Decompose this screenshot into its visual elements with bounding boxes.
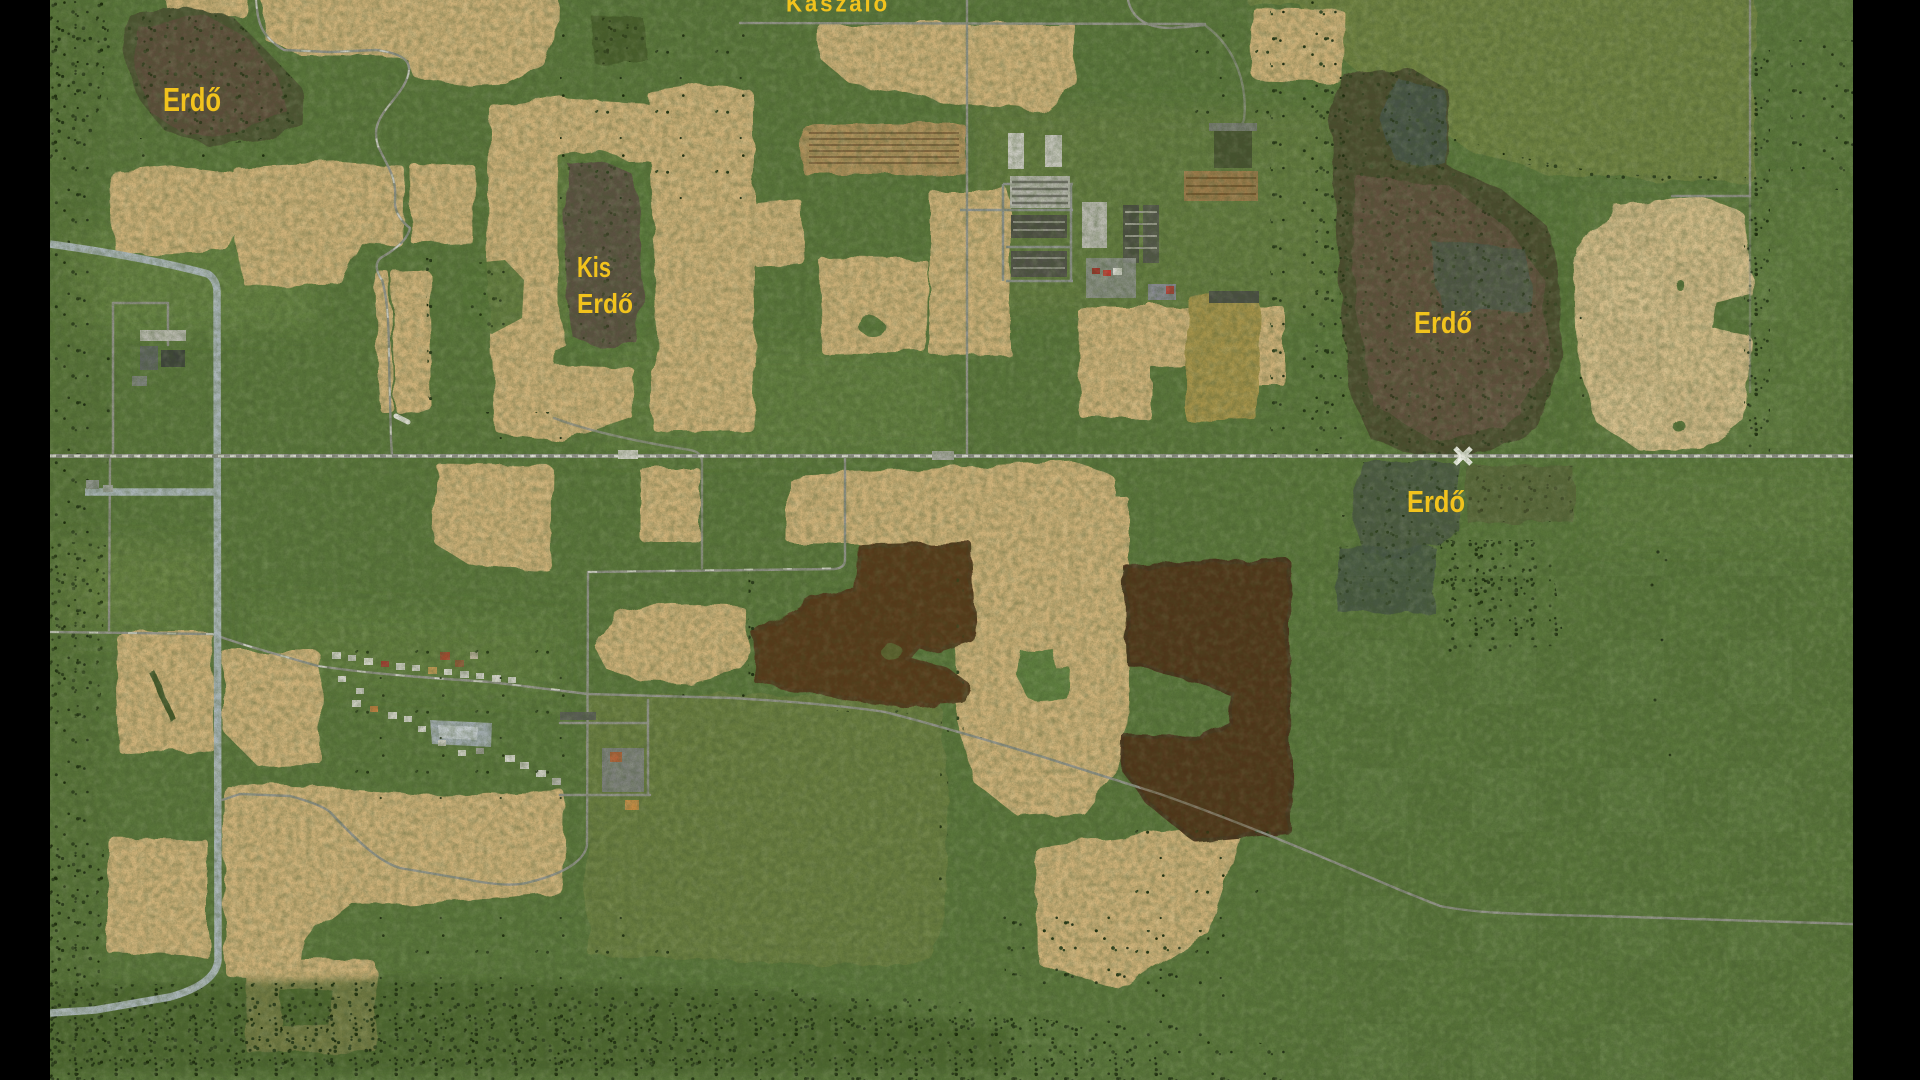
svg-text:Erdő: Erdő — [163, 81, 221, 118]
svg-text:Erdő: Erdő — [577, 288, 633, 319]
svg-text:Kaszáló: Kaszáló — [786, 0, 890, 18]
svg-text:Erdő: Erdő — [1407, 484, 1465, 519]
svg-text:Erdő: Erdő — [1414, 305, 1472, 340]
svg-text:Kis: Kis — [577, 252, 611, 284]
